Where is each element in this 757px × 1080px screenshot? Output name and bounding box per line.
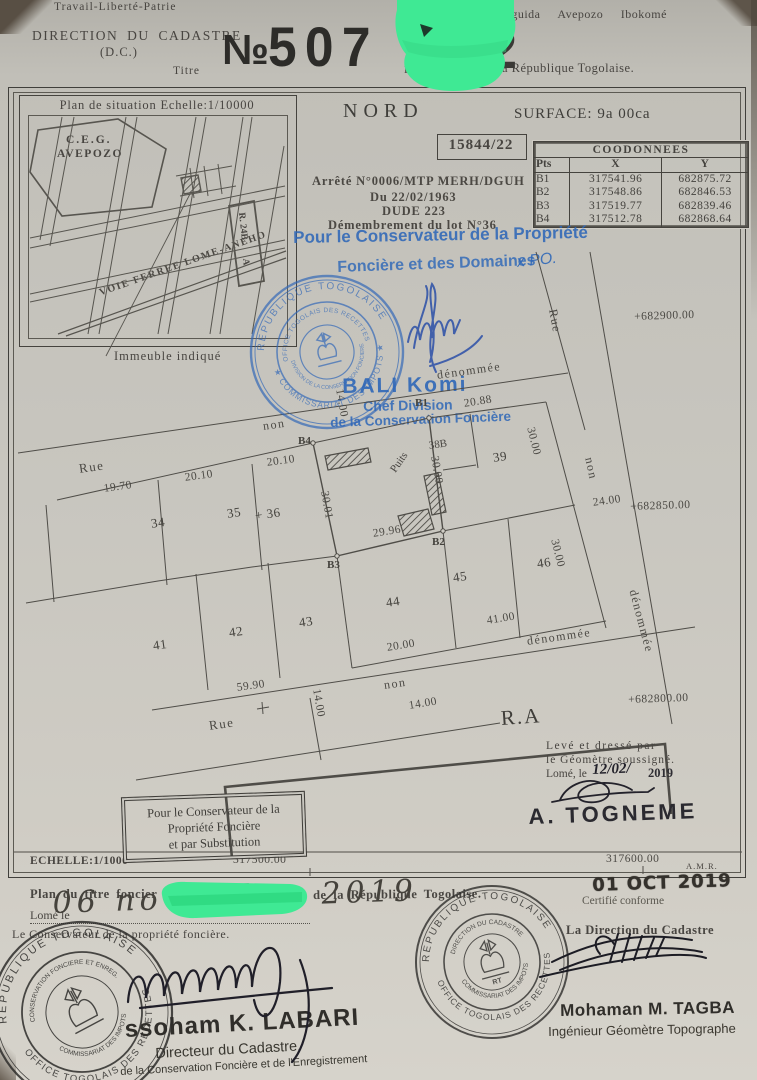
otr-round-stamp-center: REPUBLIQUE TOGOLAISE ★ OFFICE TOGOLAIS D… [399,869,585,1055]
blue-round-stamp: REPUBLIQUE TOGOLAISE ★ COMMISSARIAT DES … [235,260,419,444]
blue-stamp-ring-bottom: ★ COMMISSARIAT DES IMPOTS ★ [272,341,398,422]
center-stamp-monogram: RT [492,977,504,986]
svg-text:★ COMMISSARIAT DES IMPOTS ★: ★ COMMISSARIAT DES IMPOTS ★ [272,341,398,422]
green-redaction-top [395,0,515,91]
otr-round-stamp-left: REPUBLIQUE TOGOLAISE ★ OFFICE TOGOLAIS D… [0,890,204,1080]
blue-stamp-inner-top: OFFICE TOGOLAIS DES RECETTES [272,297,370,362]
surveyor-signature [552,781,654,802]
blue-signature [408,284,482,372]
green-redaction-bottom [162,882,307,918]
svg-text:OFFICE TOGOLAIS DES RECETTES: OFFICE TOGOLAIS DES RECETTES [272,297,370,362]
scanned-cadastral-document: Travail-Liberté-Patrie Baguida Avepozo I… [0,0,757,1080]
stamps-and-annotations: REPUBLIQUE TOGOLAISE ★ COMMISSARIAT DES … [0,0,757,1080]
